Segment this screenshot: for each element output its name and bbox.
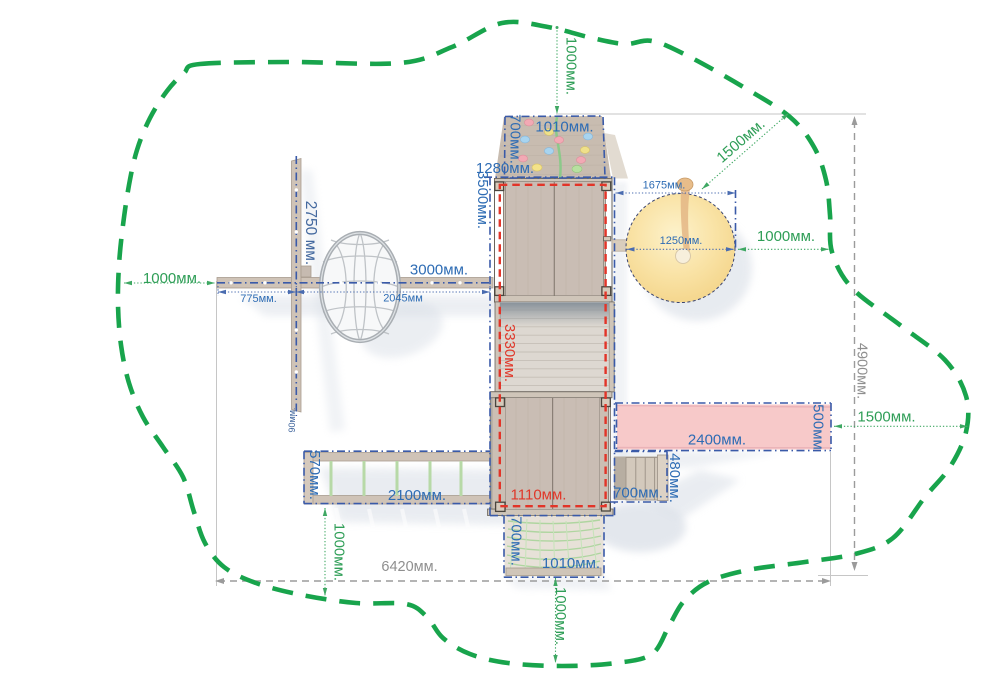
svg-text:775мм.: 775мм. xyxy=(240,293,277,305)
svg-text:6420мм.: 6420мм. xyxy=(381,559,437,575)
svg-text:480мм.: 480мм. xyxy=(666,453,683,503)
svg-text:2400мм.: 2400мм. xyxy=(688,432,746,449)
svg-text:2045мм: 2045мм xyxy=(383,293,423,305)
svg-text:700мм.: 700мм. xyxy=(508,516,525,566)
svg-text:1000мм.: 1000мм. xyxy=(563,37,580,95)
svg-text:90мм.: 90мм. xyxy=(287,408,297,433)
svg-text:1010мм.: 1010мм. xyxy=(535,119,593,136)
svg-text:1110мм.: 1110мм. xyxy=(511,487,567,504)
svg-text:1000мм.: 1000мм. xyxy=(552,587,569,645)
svg-text:1500мм.: 1500мм. xyxy=(857,409,915,426)
svg-text:570мм.: 570мм. xyxy=(306,450,323,500)
svg-text:1000мм.: 1000мм. xyxy=(143,270,201,287)
svg-text:2750 мм.: 2750 мм. xyxy=(302,201,319,265)
svg-text:1000мм.: 1000мм. xyxy=(757,228,815,245)
svg-text:3500мм.: 3500мм. xyxy=(474,171,491,229)
svg-text:700мм.: 700мм. xyxy=(507,114,524,164)
svg-text:1675мм.: 1675мм. xyxy=(643,180,686,192)
svg-text:1010мм.: 1010мм. xyxy=(542,555,600,572)
svg-text:500мм: 500мм xyxy=(810,404,827,450)
svg-text:1250мм.: 1250мм. xyxy=(660,235,703,247)
svg-text:3330мм.: 3330мм. xyxy=(501,324,518,382)
svg-text:1000мм.: 1000мм. xyxy=(331,523,348,581)
svg-text:3000мм.: 3000мм. xyxy=(410,262,468,279)
svg-text:2100мм.: 2100мм. xyxy=(388,487,446,504)
svg-text:700мм.: 700мм. xyxy=(613,485,663,502)
svg-text:4900мм.: 4900мм. xyxy=(854,343,870,399)
